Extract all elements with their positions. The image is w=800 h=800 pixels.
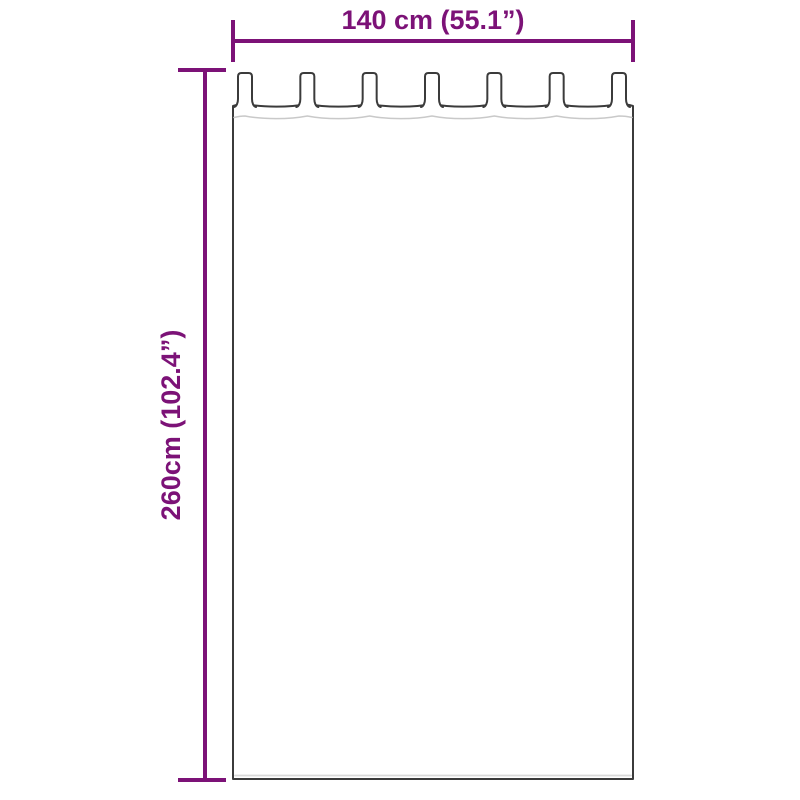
- curtain-tab: [546, 73, 568, 107]
- curtain-tab: [608, 73, 630, 107]
- width-dimension-line: [233, 39, 633, 43]
- curtain-tab: [421, 73, 443, 107]
- curtain-drawing: [233, 73, 633, 779]
- width-dimension-label: 140 cm (55.1”): [233, 4, 633, 36]
- height-dimension-cap-top: [178, 68, 226, 72]
- curtain-tab: [359, 73, 381, 107]
- height-dimension-label: 260cm (102.4”): [155, 330, 187, 521]
- curtain-tab: [296, 73, 318, 107]
- curtain-body: [233, 104, 633, 779]
- curtain-tab: [483, 73, 505, 107]
- curtain-illustration: [0, 0, 800, 800]
- product-dimension-diagram: 140 cm (55.1”) 260cm (102.4”): [0, 0, 800, 800]
- height-dimension-line: [203, 68, 207, 782]
- curtain-tab: [234, 73, 256, 107]
- height-dimension-cap-bottom: [178, 778, 226, 782]
